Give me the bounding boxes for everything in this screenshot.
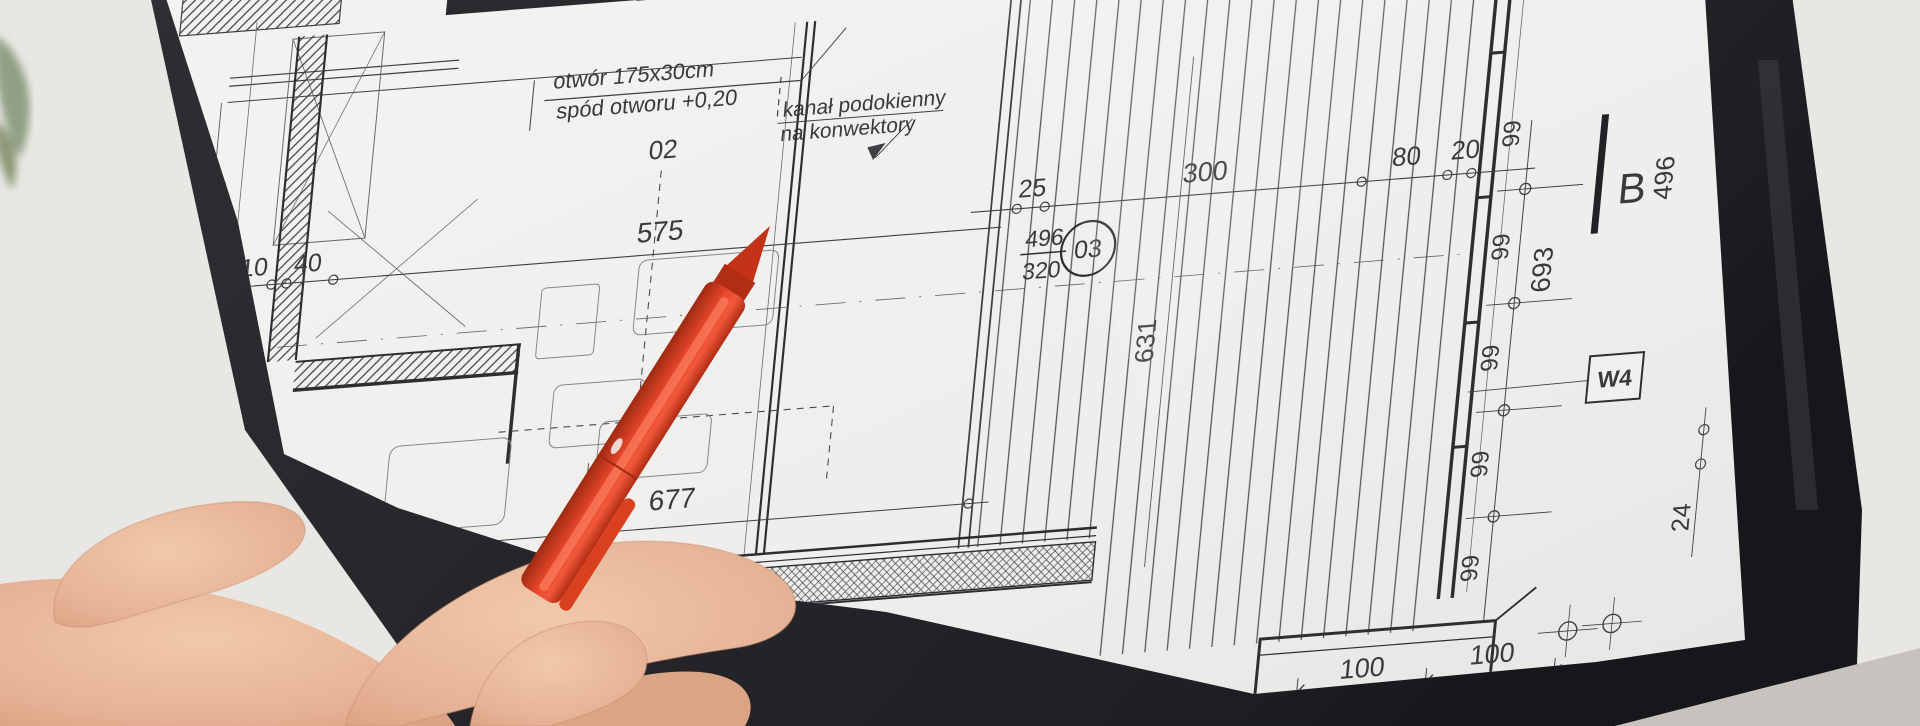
dim-100-b: 100 [1468,636,1516,671]
dim-20: 20 [1450,133,1482,165]
dim-99-4: 99 [1466,450,1495,479]
photo-scene: otwór 175x30cm spód otworu +0,20 kanał p… [0,0,1920,726]
dim-80: 80 [1391,140,1423,172]
dim-99-2: 99 [1487,232,1516,261]
dim-99-5: 99 [1456,554,1485,583]
window-tag-w4: W4 [1596,364,1633,393]
dim-99-3: 99 [1476,344,1505,373]
dim-575: 575 [636,213,686,249]
dim-677: 677 [647,481,697,517]
dim-99-1: 99 [1498,119,1527,148]
dim-496-section: 496 [1647,155,1681,201]
opening-tag-02: 02 [647,133,679,165]
room-fraction-top: 496 [1024,223,1065,252]
dim-100-a: 100 [1338,650,1386,685]
dim-24: 24 [1666,503,1696,533]
dim-25: 25 [1017,173,1047,203]
dim-40: 40 [293,249,323,279]
section-letter-b: B [1616,163,1648,212]
room-fraction-bottom: 320 [1021,256,1062,285]
dim-693: 693 [1524,246,1559,294]
